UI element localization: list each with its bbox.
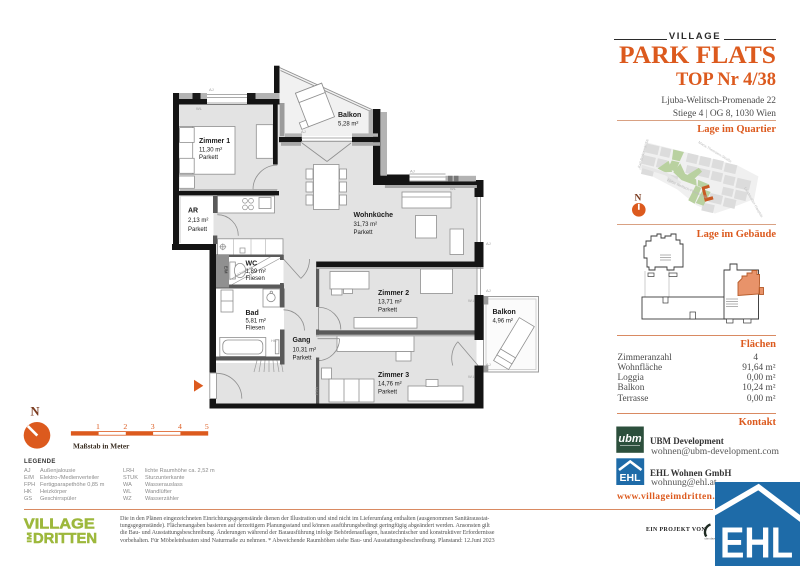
svg-text:WC: WC bbox=[246, 261, 258, 268]
svg-text:Maßstab in Meter: Maßstab in Meter bbox=[73, 442, 130, 451]
svg-text:10,31 m²: 10,31 m² bbox=[293, 348, 317, 354]
svg-text:Zimmer 1: Zimmer 1 bbox=[199, 138, 230, 145]
svg-text:Zimmer 2: Zimmer 2 bbox=[378, 290, 409, 297]
svg-text:AJ: AJ bbox=[486, 241, 491, 246]
svg-text:Wohnküche: Wohnküche bbox=[354, 212, 394, 219]
svg-text:5,28 m²: 5,28 m² bbox=[338, 122, 358, 128]
svg-text:Bad: Bad bbox=[246, 310, 259, 317]
svg-text:1: 1 bbox=[96, 422, 100, 431]
svg-text:FPH: FPH bbox=[314, 387, 319, 395]
svg-text:AJ: AJ bbox=[209, 87, 214, 92]
svg-text:2,13 m²: 2,13 m² bbox=[188, 218, 208, 224]
svg-text:WL: WL bbox=[450, 186, 457, 191]
svg-text:11,30 m²: 11,30 m² bbox=[199, 148, 222, 154]
svg-text:4,96 m²: 4,96 m² bbox=[493, 319, 513, 325]
svg-text:Parkett: Parkett bbox=[293, 356, 312, 362]
svg-text:AJ: AJ bbox=[486, 362, 491, 367]
svg-text:W.L: W.L bbox=[468, 298, 476, 303]
svg-text:13,71 m²: 13,71 m² bbox=[378, 300, 402, 306]
svg-text:1,89 m²: 1,89 m² bbox=[246, 269, 266, 275]
svg-text:EHL: EHL bbox=[620, 472, 642, 484]
svg-text:14,76 m²: 14,76 m² bbox=[378, 382, 402, 388]
svg-text:2: 2 bbox=[123, 422, 127, 431]
svg-text:5: 5 bbox=[205, 422, 209, 431]
svg-text:Gang: Gang bbox=[293, 337, 311, 344]
svg-text:Parkett: Parkett bbox=[188, 227, 207, 233]
svg-text:AJ: AJ bbox=[301, 129, 306, 134]
svg-text:Fliesen: Fliesen bbox=[246, 326, 265, 332]
svg-text:AR: AR bbox=[188, 208, 198, 215]
svg-text:Parkett: Parkett bbox=[378, 308, 397, 314]
svg-text:N: N bbox=[635, 194, 642, 204]
svg-text:AJ: AJ bbox=[410, 169, 415, 174]
svg-text:WL: WL bbox=[196, 106, 203, 111]
svg-text:Parkett: Parkett bbox=[354, 230, 373, 236]
svg-text:DRITTEN: DRITTEN bbox=[33, 531, 97, 547]
svg-text:N: N bbox=[31, 405, 40, 419]
svg-text:E/M: E/M bbox=[224, 266, 229, 274]
svg-text:3: 3 bbox=[151, 422, 155, 431]
svg-text:5,81 m²: 5,81 m² bbox=[246, 319, 266, 325]
svg-text:HK: HK bbox=[271, 338, 277, 343]
svg-text:Zimmer 3: Zimmer 3 bbox=[378, 372, 409, 379]
svg-text:Balkon: Balkon bbox=[338, 112, 361, 119]
svg-text:Balkon: Balkon bbox=[493, 309, 516, 316]
svg-text:4: 4 bbox=[178, 422, 182, 431]
svg-text:Parkett: Parkett bbox=[378, 390, 397, 396]
svg-text:Parkett: Parkett bbox=[199, 155, 218, 161]
svg-text:31,73 m²: 31,73 m² bbox=[354, 222, 378, 228]
svg-text:AJ: AJ bbox=[486, 288, 491, 293]
svg-text:Fliesen: Fliesen bbox=[246, 276, 265, 282]
svg-text:IM: IM bbox=[26, 532, 33, 543]
svg-text:EHL: EHL bbox=[720, 518, 793, 566]
svg-text:W.L: W.L bbox=[468, 374, 476, 379]
svg-text:ubm: ubm bbox=[618, 433, 641, 445]
